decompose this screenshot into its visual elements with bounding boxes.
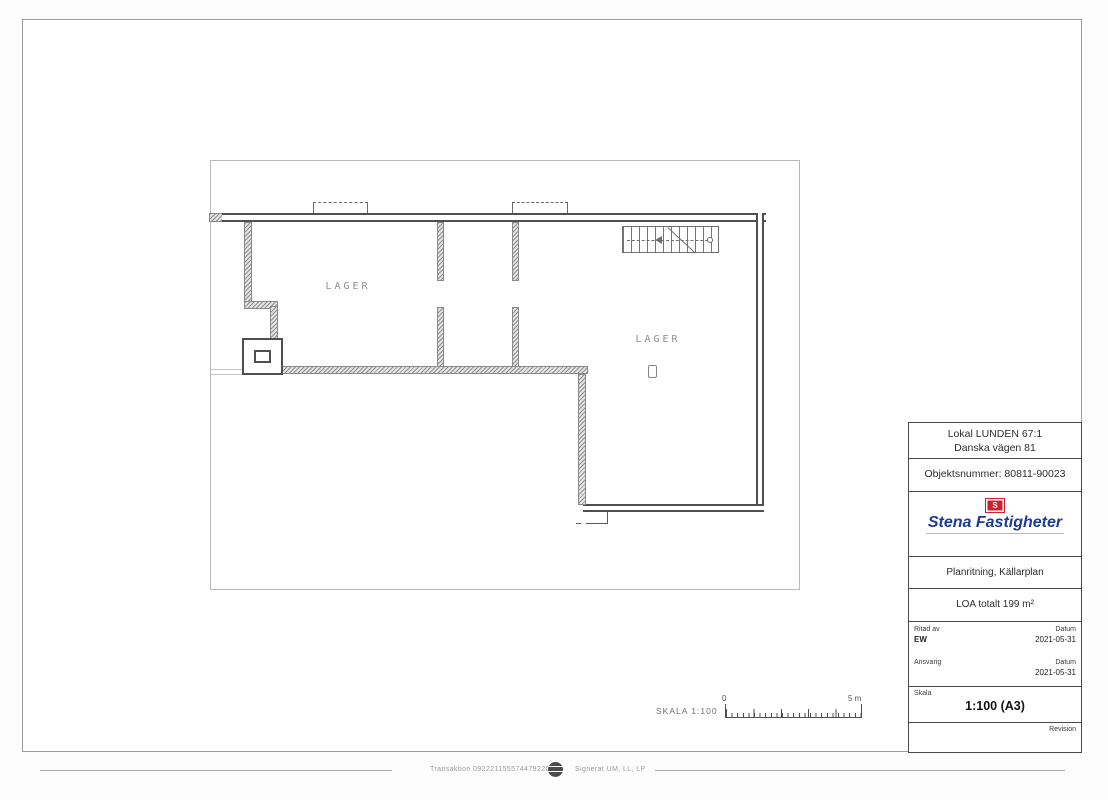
stair-end-circle bbox=[707, 237, 713, 243]
door-notch-horizontal bbox=[586, 523, 608, 524]
responsible-label: Ansvarig bbox=[914, 659, 941, 666]
window-tab-1 bbox=[313, 202, 368, 213]
object-number: Objektsnummer: 80811-90023 bbox=[924, 468, 1065, 480]
staircase bbox=[622, 226, 719, 253]
footer-rule-left bbox=[40, 770, 392, 771]
column-marker-icon bbox=[648, 365, 657, 378]
object-number-row: Objektsnummer: 80811-90023 bbox=[909, 458, 1081, 491]
scale-bar-ruler bbox=[725, 704, 862, 718]
drawn-by-value: EW bbox=[914, 635, 927, 644]
title-block: Lokal LUNDEN 67:1 Danska vägen 81 Objekt… bbox=[908, 422, 1082, 753]
partition-1-lower bbox=[437, 307, 444, 367]
room-label-lager-left: LAGER bbox=[314, 281, 382, 292]
partition-1-upper bbox=[437, 222, 444, 281]
drawn-by-label: Ritad av bbox=[914, 626, 940, 633]
title-site-row: Lokal LUNDEN 67:1 Danska vägen 81 bbox=[909, 423, 1081, 458]
revision-label: Revision bbox=[1049, 726, 1076, 733]
scale-label: Skala bbox=[914, 690, 932, 697]
door-notch-tick bbox=[576, 523, 581, 524]
site-line-2: Danska vägen 81 bbox=[909, 441, 1081, 455]
date-label-2: Datum bbox=[1055, 659, 1076, 666]
drawing-sheet: LAGER LAGER SKALA 1:100 0 5 m Lokal LUND… bbox=[0, 0, 1108, 800]
site-line-1: Lokal LUNDEN 67:1 bbox=[909, 427, 1081, 441]
helper-line bbox=[210, 374, 243, 375]
helper-line bbox=[210, 369, 243, 370]
window-tab-2 bbox=[512, 202, 568, 213]
stair-direction-arrow-icon bbox=[655, 236, 662, 244]
revision-row: Revision bbox=[909, 722, 1081, 753]
date-label-1: Datum bbox=[1055, 626, 1076, 633]
brand-row: S Stena Fastigheter bbox=[909, 491, 1081, 556]
scale-bar-start: 0 bbox=[722, 694, 726, 703]
scale-row: Skala 1:100 (A3) bbox=[909, 686, 1081, 722]
stena-logo-icon: S bbox=[985, 498, 1005, 513]
scale-bar-end: 5 m bbox=[848, 694, 861, 703]
drawn-date: 2021-05-31 bbox=[1035, 635, 1076, 644]
shaft-inner-square bbox=[254, 350, 271, 363]
area-row: LOA totalt 199 m² bbox=[909, 588, 1081, 621]
scrive-seal-icon bbox=[548, 762, 563, 777]
partition-2-upper bbox=[512, 222, 519, 281]
meta-row: Ritad av Datum EW 2021-05-31 Ansvarig Da… bbox=[909, 621, 1081, 686]
footer-transaction: Transaktion 09222115557447922043 bbox=[430, 766, 558, 773]
brand-name: Stena Fastigheter bbox=[926, 514, 1064, 534]
stair-centerline bbox=[627, 240, 713, 241]
drawing-title-row: Planritning, Källarplan bbox=[909, 556, 1081, 588]
wall-left-upper bbox=[244, 222, 252, 306]
scale-value: 1:100 (A3) bbox=[909, 687, 1081, 713]
shaft-box bbox=[242, 338, 283, 375]
wall-tab-left bbox=[209, 213, 223, 222]
wall-left-lower bbox=[270, 306, 278, 340]
footer-signed: Signerat UM, LL, LP bbox=[575, 766, 646, 773]
drawing-title: Planritning, Källarplan bbox=[946, 567, 1043, 578]
wall-right bbox=[756, 213, 764, 512]
door-notch-vertical bbox=[607, 512, 608, 524]
responsible-date: 2021-05-31 bbox=[1035, 668, 1076, 677]
plan-boundary bbox=[210, 160, 800, 590]
wall-vertical-right bbox=[578, 374, 586, 505]
scale-bar-label: SKALA 1:100 bbox=[656, 706, 718, 716]
area-total: LOA totalt 199 m² bbox=[956, 599, 1034, 610]
partition-2-lower bbox=[512, 307, 519, 367]
wall-bottom bbox=[583, 504, 764, 512]
wall-main-horizontal bbox=[281, 366, 588, 374]
room-label-lager-right: LAGER bbox=[624, 334, 692, 345]
wall-top bbox=[222, 213, 766, 222]
footer-rule-right bbox=[655, 770, 1065, 771]
